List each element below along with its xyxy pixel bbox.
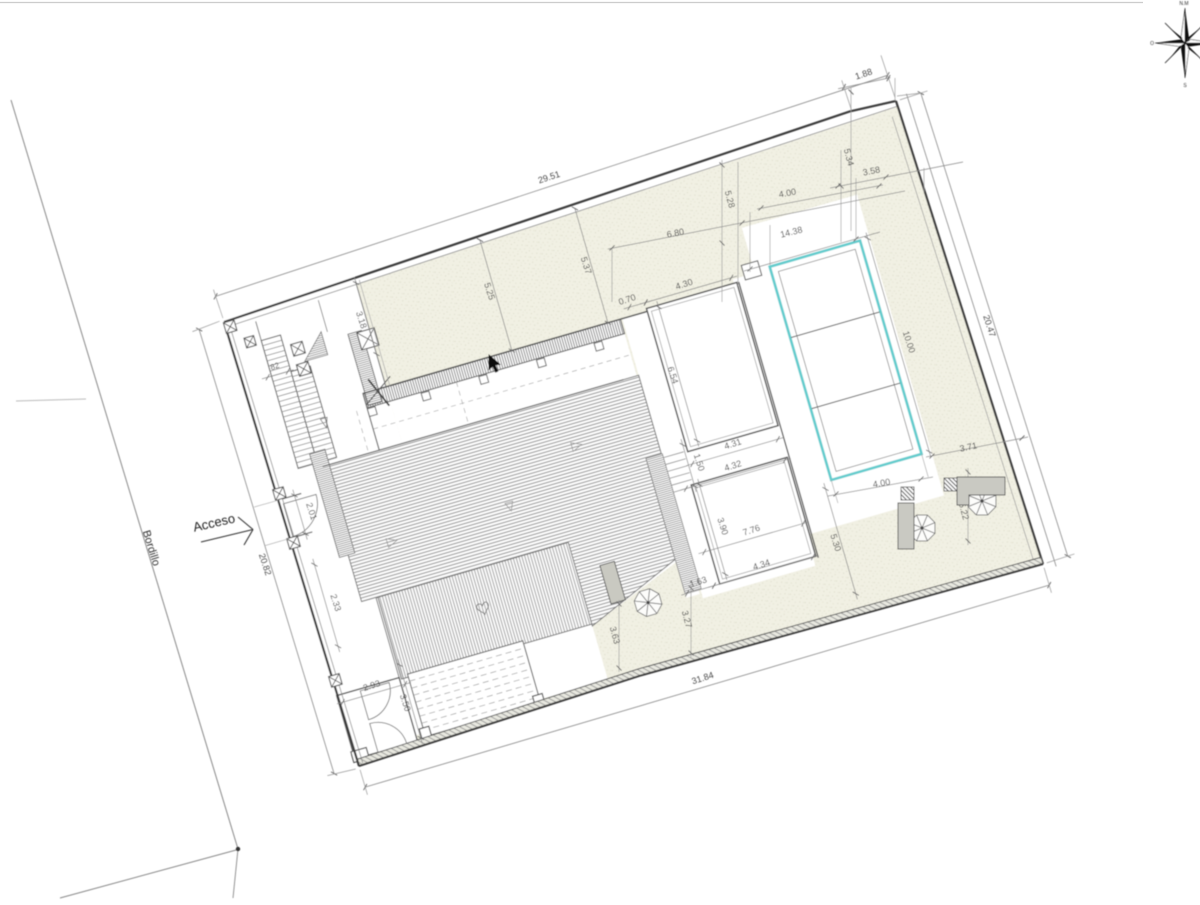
svg-text:N.M: N.M	[1179, 1, 1188, 7]
svg-text:O: O	[1150, 41, 1154, 47]
